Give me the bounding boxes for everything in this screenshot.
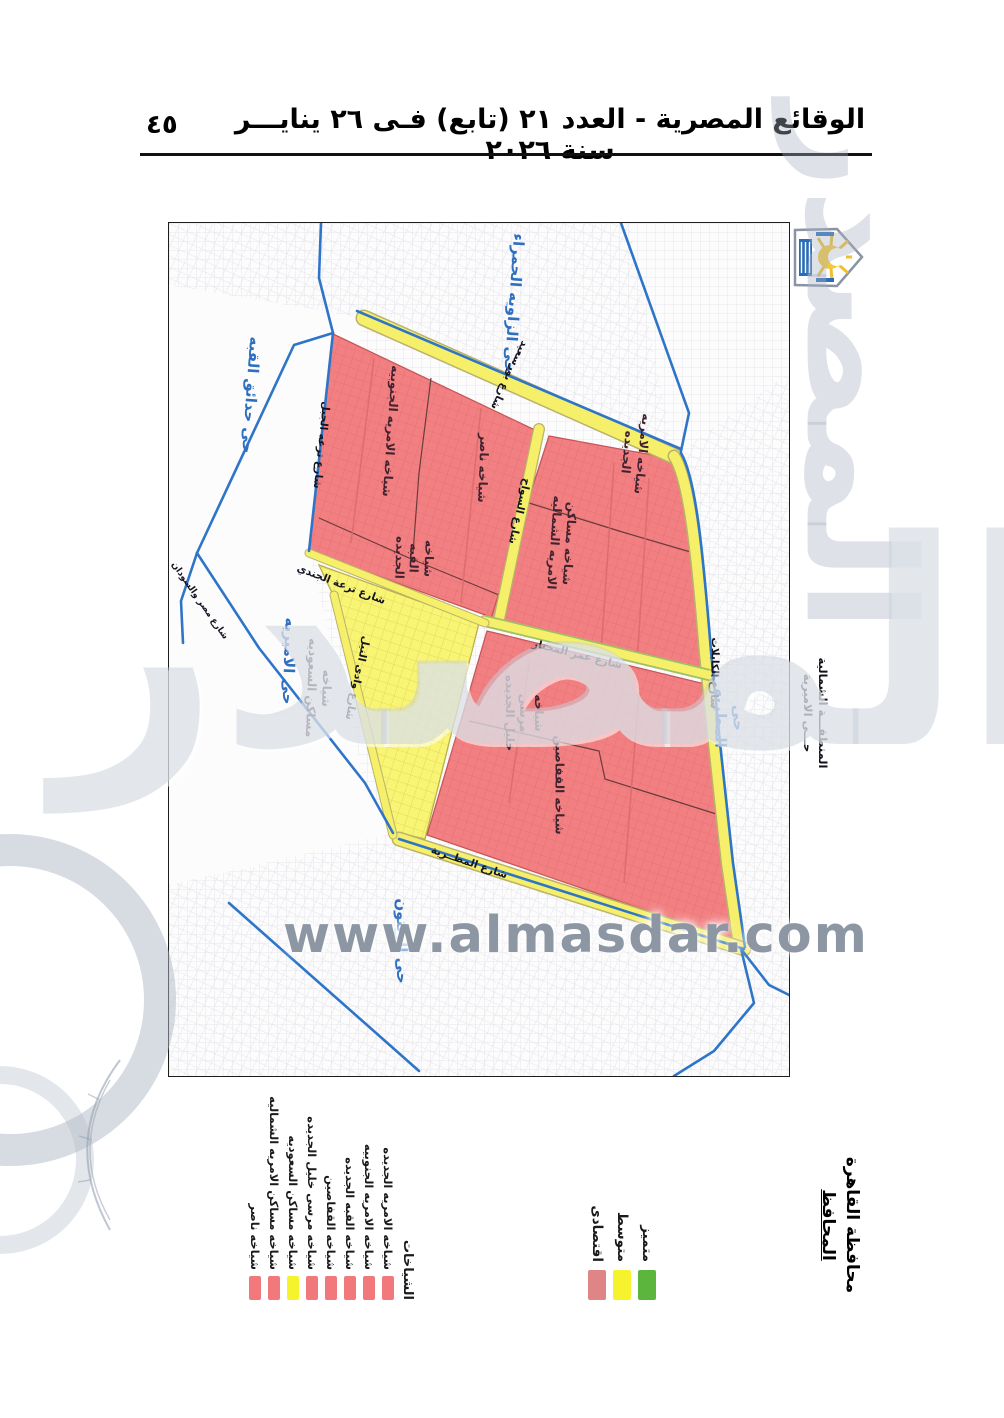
legend-item: اقتصادى bbox=[585, 1185, 610, 1300]
legend-item: متميز bbox=[635, 1185, 660, 1300]
legend-label: شياخه القفاصين bbox=[325, 1175, 339, 1270]
header-rule bbox=[140, 153, 872, 156]
legend-item: شياخه الامريه الجنوبيه bbox=[360, 1080, 379, 1300]
legend-shiakhat-title: الشياخات bbox=[400, 1080, 415, 1300]
legend-label: متوسط bbox=[615, 1212, 631, 1262]
legend-label: شياخه الامريه الجديده bbox=[382, 1147, 396, 1270]
watermark-url: www.almasdar.com bbox=[283, 906, 869, 965]
legend-item: شياخه القبه الجديده bbox=[341, 1080, 360, 1300]
legend-item: شياخه مرسى خليل الجديده bbox=[303, 1080, 322, 1300]
legend-swatch bbox=[326, 1276, 338, 1300]
legend-swatch bbox=[269, 1276, 281, 1300]
legend-swatch bbox=[614, 1270, 632, 1300]
legend-swatch bbox=[364, 1276, 376, 1300]
watermark-arcs bbox=[0, 820, 250, 1280]
legend-label: شياخه مساكن الامريه الشماليه bbox=[268, 1096, 282, 1270]
legend-item: شياخه مساكن الامريه الشماليه bbox=[265, 1080, 284, 1300]
legend-label: شياخه ناصر bbox=[249, 1204, 263, 1271]
legend-swatch bbox=[639, 1270, 657, 1300]
legend-label: شياخه الامريه الجنوبيه bbox=[363, 1144, 377, 1270]
gazette-page: ٤٥ الوقائع المصرية - العدد ٢١ (تابع) فـى… bbox=[0, 0, 1004, 1418]
legend-item: شياخه ناصر bbox=[246, 1080, 265, 1300]
legend-shiakhat: الشياخات شياخه الامريه الجديده شياخه الا… bbox=[225, 1080, 415, 1300]
legend-swatch bbox=[589, 1270, 607, 1300]
legend-label: اقتصادى bbox=[590, 1205, 606, 1262]
legend-swatch bbox=[307, 1276, 319, 1300]
legend-label: متميز bbox=[640, 1225, 656, 1262]
legend-swatch bbox=[288, 1276, 300, 1300]
legend-item: شياخه الامريه الجديده bbox=[379, 1080, 398, 1300]
legend-swatch bbox=[345, 1276, 357, 1300]
signature-block: محافظة القاهرة المحافظ bbox=[790, 1140, 862, 1310]
legend-label: شياخه مرسى خليل الجديده bbox=[306, 1116, 320, 1270]
legend-item: متوسط bbox=[610, 1185, 635, 1300]
watermark-big-text: المصدر bbox=[55, 480, 1004, 812]
legend-levels: متميز متوسط اقتصادى bbox=[585, 1185, 660, 1300]
signature-governorate: محافظة القاهرة bbox=[842, 1140, 862, 1310]
legend-item: شياخه القفاصين bbox=[322, 1080, 341, 1300]
legend-label: شياخه مساكن السعوديه bbox=[287, 1135, 301, 1270]
legend-label: شياخه القبه الجديده bbox=[344, 1157, 358, 1270]
legend-swatch bbox=[250, 1276, 262, 1300]
signature-governor: المحافظ bbox=[818, 1140, 838, 1310]
legend-item: شياخه مساكن السعوديه bbox=[284, 1080, 303, 1300]
legend-swatch bbox=[383, 1276, 395, 1300]
page-number: ٤٥ bbox=[146, 110, 178, 140]
